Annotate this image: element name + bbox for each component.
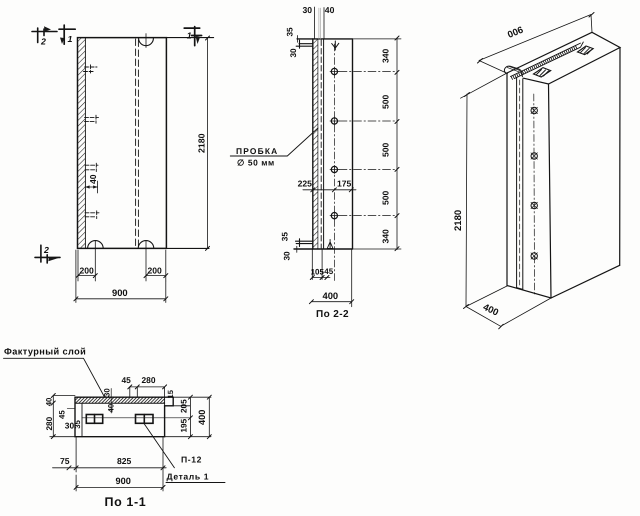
svg-text:45: 45 (58, 410, 67, 419)
svg-text:500: 500 (381, 190, 391, 205)
svg-text:900: 900 (506, 23, 525, 39)
svg-text:2: 2 (43, 245, 49, 255)
svg-text:1: 1 (68, 34, 73, 44)
svg-text:205: 205 (179, 399, 188, 413)
svg-text:500: 500 (381, 142, 391, 157)
svg-text:30: 30 (283, 251, 292, 261)
svg-text:500: 500 (381, 94, 391, 109)
svg-text:280: 280 (45, 416, 54, 430)
svg-text:40: 40 (45, 397, 54, 406)
svg-text:35: 35 (281, 232, 290, 242)
svg-text:Деталь 1: Деталь 1 (167, 472, 210, 482)
svg-text:825: 825 (117, 456, 132, 466)
svg-text:30: 30 (103, 388, 112, 397)
svg-text:195: 195 (179, 418, 188, 432)
svg-text:400: 400 (323, 290, 339, 301)
svg-text:175: 175 (337, 179, 352, 189)
svg-text:105: 105 (311, 268, 325, 277)
svg-text:40: 40 (325, 5, 335, 15)
svg-text:45: 45 (122, 375, 132, 385)
svg-text:400: 400 (481, 302, 500, 319)
svg-text:2180: 2180 (453, 210, 464, 231)
svg-text:∅ 50 мм: ∅ 50 мм (237, 158, 275, 168)
svg-text:900: 900 (112, 287, 128, 298)
svg-text:По 1-1: По 1-1 (105, 495, 147, 509)
svg-text:340: 340 (381, 48, 391, 63)
svg-text:225: 225 (298, 179, 313, 189)
svg-text:ПРОБКА: ПРОБКА (236, 146, 278, 156)
svg-text:30: 30 (303, 5, 313, 15)
svg-text:340: 340 (381, 229, 391, 244)
svg-text:2180: 2180 (197, 133, 207, 153)
svg-text:40: 40 (88, 174, 98, 184)
svg-text:900: 900 (116, 476, 131, 486)
svg-text:40: 40 (107, 403, 116, 412)
svg-text:45: 45 (324, 267, 333, 276)
svg-text:200: 200 (148, 266, 163, 276)
svg-text:2: 2 (40, 37, 46, 47)
svg-text:35: 35 (73, 419, 82, 428)
svg-text:30: 30 (289, 48, 298, 58)
svg-text:Фактурный слой: Фактурный слой (4, 347, 86, 357)
svg-text:400: 400 (197, 410, 207, 425)
svg-text:П-12: П-12 (181, 455, 202, 465)
svg-text:35: 35 (286, 27, 295, 37)
svg-text:По 2-2: По 2-2 (316, 309, 349, 320)
svg-text:75: 75 (60, 456, 70, 466)
svg-text:280: 280 (142, 375, 156, 385)
svg-text:200: 200 (80, 266, 95, 276)
svg-text:1: 1 (187, 31, 192, 41)
